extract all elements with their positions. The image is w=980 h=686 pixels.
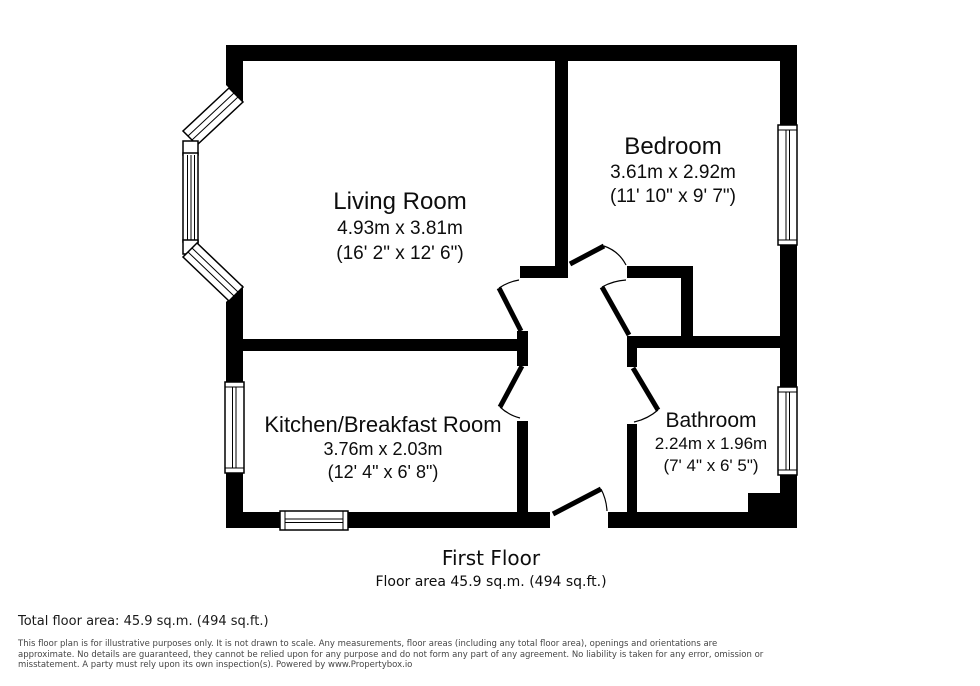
room-dimensions-metric: 4.93m x 3.81m (333, 216, 466, 241)
room-dimensions-metric: 3.61m x 2.92m (610, 161, 736, 185)
room-dimensions-metric: 2.24m x 1.96m (655, 433, 767, 455)
room-name: Bedroom (610, 133, 736, 161)
room-name: Living Room (333, 188, 466, 216)
bay-window (183, 88, 243, 301)
living-room-label: Living Room 4.93m x 3.81m (16' 2" x 12' … (333, 188, 466, 266)
bay-window-bottom-pane (183, 243, 243, 301)
room-dimensions-imperial: (7' 4" x 6' 5") (655, 455, 767, 477)
wall-bathroom-left-lower (627, 424, 637, 512)
room-dimensions-imperial: (11' 10" x 9' 7") (610, 185, 736, 209)
disclaimer-line: This floor plan is for illustrative purp… (18, 639, 763, 650)
floor-area: Floor area 45.9 sq.m. (494 sq.ft.) (375, 571, 606, 593)
room-dimensions-imperial: (12' 4" x 6' 8") (264, 461, 501, 484)
disclaimer-line: approximate. No details are guaranteed, … (18, 650, 763, 661)
room-name: Bathroom (655, 408, 767, 433)
wall-bathroom-step (748, 493, 797, 528)
bedroom-window (778, 125, 797, 245)
floor-caption: First Floor Floor area 45.9 sq.m. (494 s… (375, 545, 606, 593)
disclaimer-line: misstatement. A party must rely upon its… (18, 660, 763, 671)
wall-bathroom-left-stub (627, 336, 637, 367)
bay-window-top-pane (183, 88, 243, 145)
disclaimer: This floor plan is for illustrative purp… (18, 639, 763, 671)
bathroom-window (778, 387, 797, 475)
kitchen-label: Kitchen/Breakfast Room 3.76m x 2.03m (12… (264, 412, 501, 484)
wall-hall-top-left (520, 266, 568, 278)
front-door (553, 489, 607, 514)
wall-bedroom-bathroom (627, 336, 782, 348)
kitchen-bottom-window (280, 511, 348, 530)
hall-cupboard-door (602, 280, 629, 335)
kitchen-side-window (225, 382, 244, 473)
room-name: Kitchen/Breakfast Room (264, 412, 501, 438)
total-floor-area: Total floor area: 45.9 sq.m. (494 sq.ft.… (18, 613, 269, 631)
wall-living-bedroom (555, 61, 568, 266)
room-dimensions-metric: 3.76m x 2.03m (264, 438, 501, 461)
floor-plan-page: Living Room 4.93m x 3.81m (16' 2" x 12' … (0, 0, 980, 686)
bedroom-door (570, 246, 626, 265)
room-dimensions-imperial: (16' 2" x 12' 6") (333, 241, 466, 266)
wall-living-kitchen (243, 339, 520, 351)
kitchen-door (500, 366, 522, 418)
wall-kitchen-hall-lower (517, 421, 528, 512)
bathroom-label: Bathroom 2.24m x 1.96m (7' 4" x 6' 5") (655, 408, 767, 477)
wall-top (226, 45, 797, 61)
floor-name: First Floor (375, 545, 606, 571)
living-room-door (499, 280, 521, 331)
wall-cupboard-right (681, 266, 693, 348)
bedroom-label: Bedroom 3.61m x 2.92m (11' 10" x 9' 7") (610, 133, 736, 209)
